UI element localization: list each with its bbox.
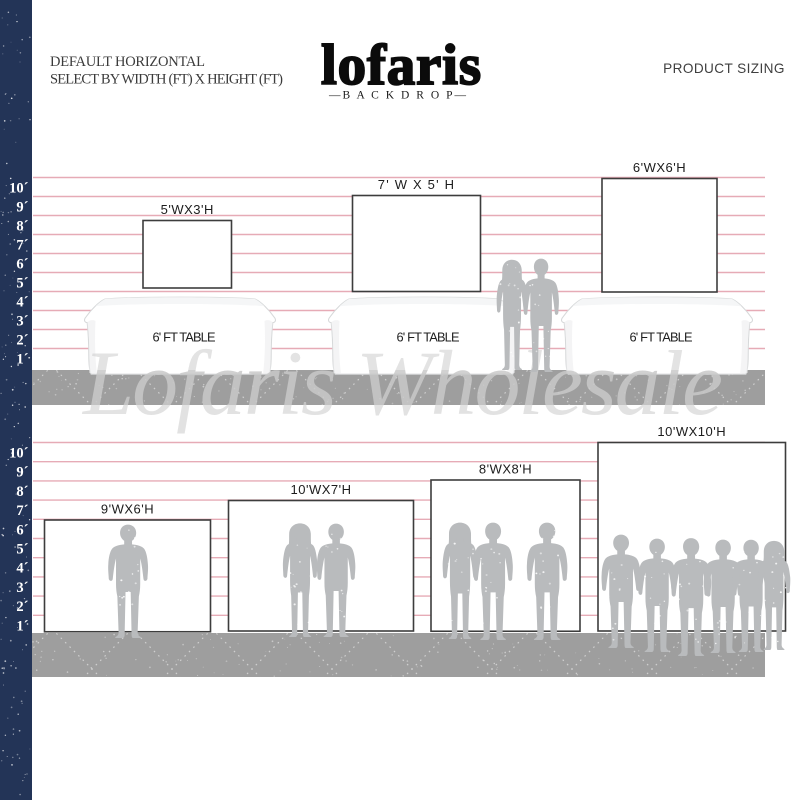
svg-text:8'WX8'H: 8'WX8'H (479, 462, 532, 477)
svg-text:—B A C K D R O P—: —B A C K D R O P— (328, 90, 471, 102)
svg-text:10´: 10´ (9, 181, 29, 197)
svg-text:7' W X 5' H: 7' W X 5' H (378, 177, 455, 192)
svg-text:5'WX3'H: 5'WX3'H (161, 202, 214, 217)
svg-text:10'WX10'H: 10'WX10'H (657, 424, 726, 439)
svg-text:9'WX6'H: 9'WX6'H (101, 502, 154, 517)
svg-text:PRODUCT SIZING: PRODUCT SIZING (663, 61, 785, 76)
svg-text:1´: 1´ (16, 618, 28, 634)
svg-text:8´: 8´ (16, 484, 28, 500)
svg-text:3´: 3´ (16, 580, 28, 596)
svg-text:7´: 7´ (16, 503, 28, 519)
svg-text:5´: 5´ (16, 276, 28, 292)
svg-text:9´: 9´ (16, 200, 28, 216)
svg-text:6´: 6´ (16, 522, 28, 538)
svg-text:2´: 2´ (16, 599, 28, 615)
svg-text:SELECT BY WIDTH (FT) X HEIGHT: SELECT BY WIDTH (FT) X HEIGHT (FT) (50, 72, 283, 88)
svg-text:10'WX7'H: 10'WX7'H (291, 482, 352, 497)
svg-text:10´: 10´ (9, 446, 29, 462)
svg-text:7´: 7´ (16, 238, 28, 254)
svg-text:6´: 6´ (16, 257, 28, 273)
svg-text:8´: 8´ (16, 219, 28, 235)
svg-text:3´: 3´ (16, 314, 28, 330)
svg-text:9´: 9´ (16, 465, 28, 481)
svg-text:5´: 5´ (16, 542, 28, 558)
svg-text:lofaris: lofaris (321, 34, 481, 97)
svg-text:1´: 1´ (16, 352, 28, 368)
svg-text:4´: 4´ (16, 561, 28, 577)
svg-text:4´: 4´ (16, 295, 28, 311)
svg-text:6'WX6'H: 6'WX6'H (633, 160, 686, 175)
svg-text:DEFAULT HORIZONTAL: DEFAULT HORIZONTAL (50, 54, 205, 70)
svg-text:2´: 2´ (16, 333, 28, 349)
